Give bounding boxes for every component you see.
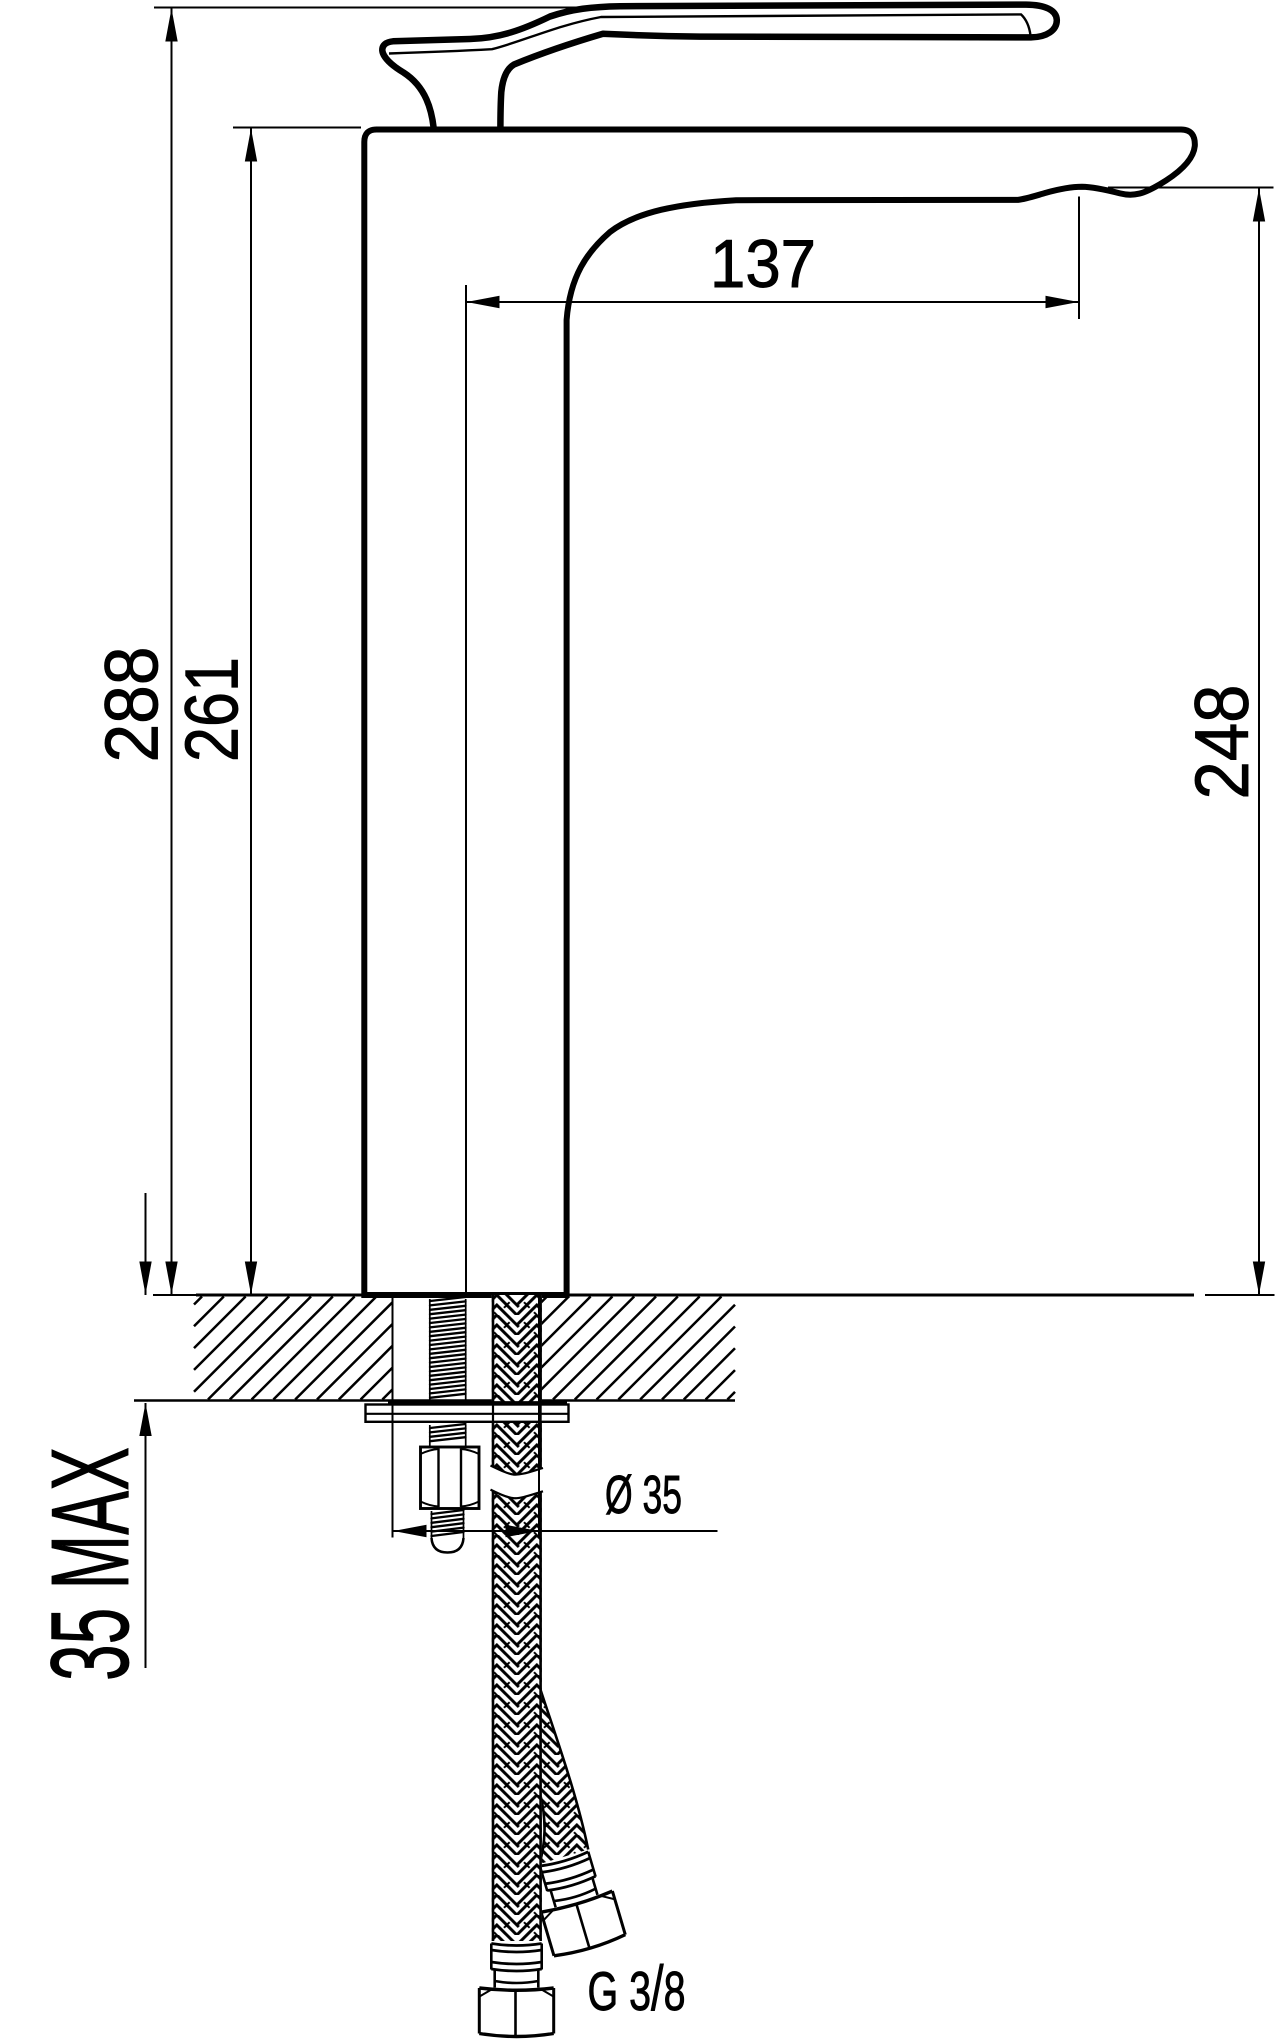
- svg-text:Ø 35: Ø 35: [605, 1465, 682, 1525]
- svg-text:288: 288: [90, 647, 174, 763]
- svg-text:248: 248: [1180, 685, 1265, 800]
- svg-text:35 MAX: 35 MAX: [29, 1447, 152, 1681]
- svg-text:137: 137: [710, 226, 816, 302]
- svg-text:261: 261: [170, 657, 254, 762]
- svg-text:G 3/8: G 3/8: [588, 1954, 686, 2024]
